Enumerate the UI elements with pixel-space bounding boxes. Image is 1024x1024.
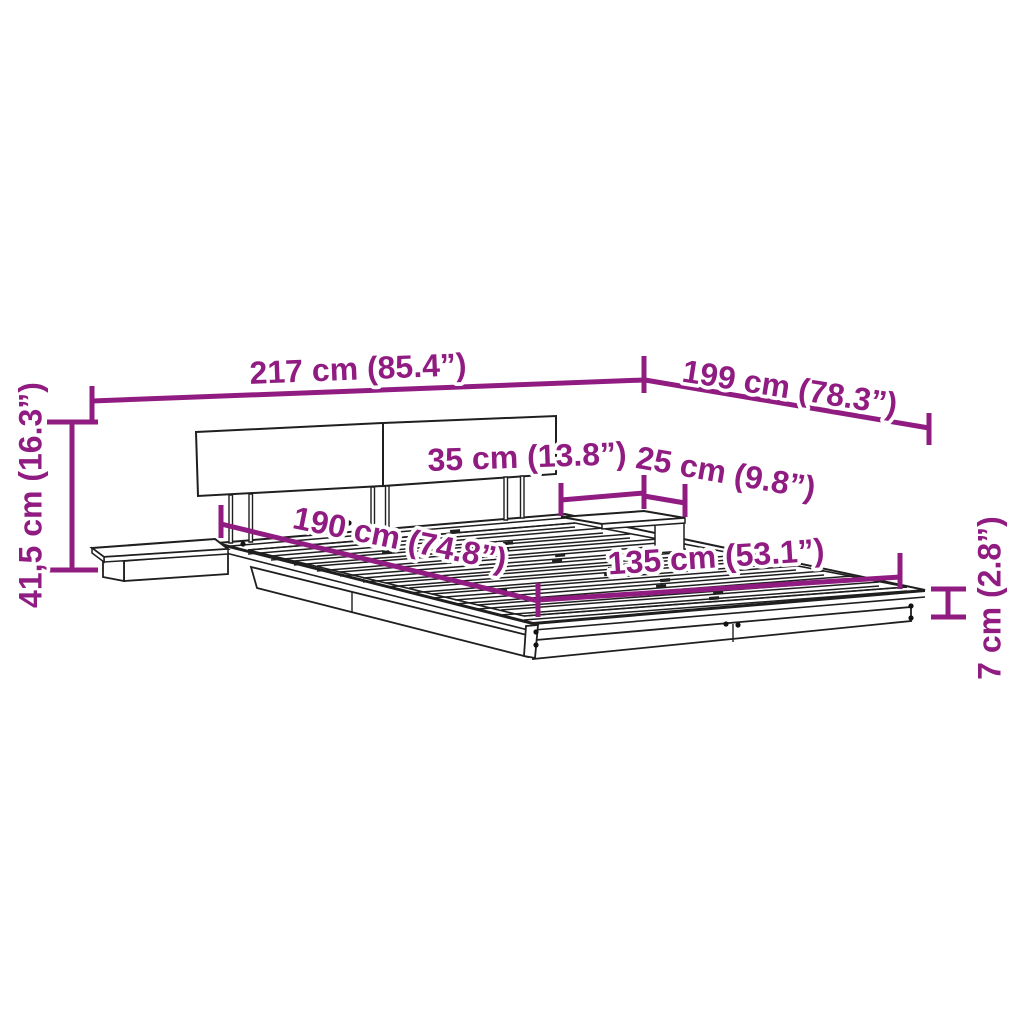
svg-text:35 cm (13.8”): 35 cm (13.8”) — [427, 435, 627, 478]
svg-text:41,5 cm (16.3”): 41,5 cm (16.3”) — [13, 382, 49, 608]
svg-text:199 cm (78.3”): 199 cm (78.3”) — [680, 353, 900, 423]
svg-text:217 cm (85.4”): 217 cm (85.4”) — [249, 346, 467, 391]
svg-text:7 cm (2.8”): 7 cm (2.8”) — [972, 516, 1008, 680]
svg-text:25 cm (9.8”): 25 cm (9.8”) — [633, 439, 818, 506]
